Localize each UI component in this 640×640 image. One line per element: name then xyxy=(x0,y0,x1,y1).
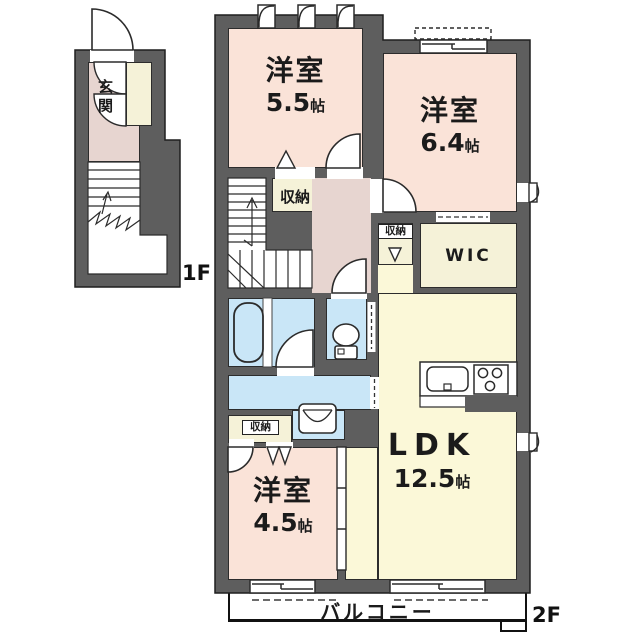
room-toilet xyxy=(326,298,367,360)
balcony-label: バルコニー xyxy=(228,596,527,625)
bedroom1-label: 洋室 5.5帖 xyxy=(228,54,363,118)
bedroom2-unit: 帖 xyxy=(465,137,480,155)
storage-bedroom3-label: 収納 xyxy=(242,420,279,435)
bedroom1-unit: 帖 xyxy=(310,97,325,115)
bedroom3-unit: 帖 xyxy=(298,517,313,535)
ldk-size: 12.5 xyxy=(394,464,456,493)
bedroom2-name: 洋室 xyxy=(383,94,517,128)
building-1f-wall-lower xyxy=(75,140,180,287)
room-genkan-closet xyxy=(126,62,152,126)
storage-bedroom1-label: 収納 xyxy=(272,186,318,207)
room-ldk-upper xyxy=(378,265,413,293)
genkan-label: 玄関 xyxy=(92,68,116,128)
storage-ldk-label: 収納 xyxy=(378,224,413,239)
wic-label: WIC xyxy=(420,246,517,266)
floor-plan-canvas: 玄関 1F 洋室 5.5帖 洋室 6.4帖 収納 収納 WIC LDK 12.5… xyxy=(0,0,640,640)
bedroom1-name: 洋室 xyxy=(228,54,363,88)
bedroom3-name: 洋室 xyxy=(228,474,338,508)
bedroom2-label: 洋室 6.4帖 xyxy=(383,94,517,158)
bedroom2-size: 6.4 xyxy=(420,128,464,157)
bedroom1-size: 5.5 xyxy=(266,88,310,117)
room-washroom-nook xyxy=(292,410,345,440)
ldk-label: LDK 12.5帖 xyxy=(357,428,507,494)
floor-label-1f: 1F xyxy=(182,261,211,285)
bedroom3-label: 洋室 4.5帖 xyxy=(228,474,338,538)
room-bathroom xyxy=(228,298,315,367)
room-washroom xyxy=(228,375,371,410)
ldk-size-row: 12.5帖 xyxy=(357,464,507,494)
floor-label-2f: 2F xyxy=(532,603,561,627)
ldk-name: LDK xyxy=(357,428,507,464)
bedroom3-size: 4.5 xyxy=(253,508,297,537)
room-hallway xyxy=(312,178,371,293)
ldk-unit: 帖 xyxy=(455,473,470,491)
